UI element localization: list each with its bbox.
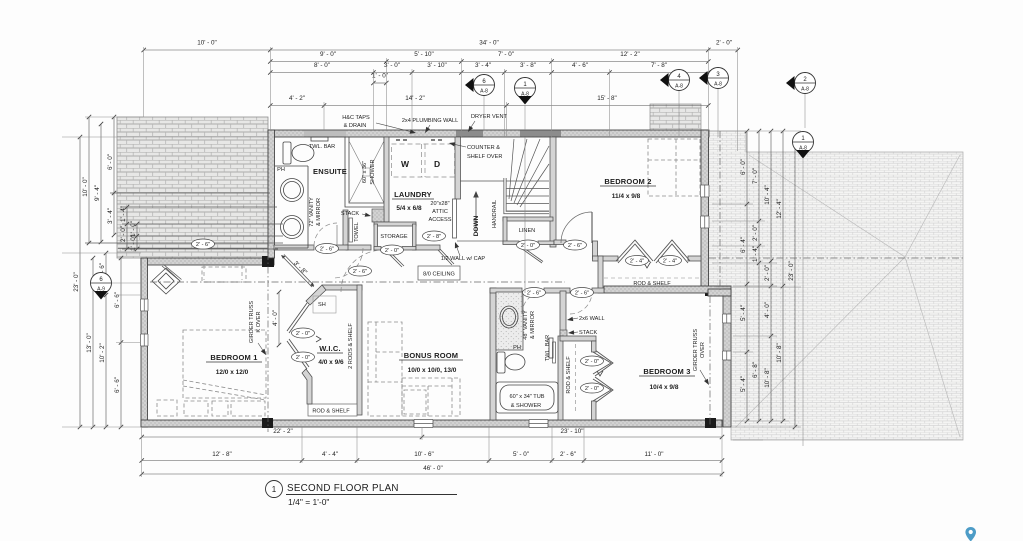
svg-text:& MIRROR: & MIRROR xyxy=(316,198,322,226)
svg-text:1: 1 xyxy=(272,485,277,494)
svg-text:PH: PH xyxy=(277,167,285,173)
svg-text:1' - 0": 1' - 0" xyxy=(130,221,137,237)
svg-text:6' - 6": 6' - 6" xyxy=(114,377,121,393)
svg-text:2' - 6": 2' - 6" xyxy=(196,242,210,248)
svg-text:W.I.C.: W.I.C. xyxy=(319,344,341,353)
svg-text:COUNTER &: COUNTER & xyxy=(467,145,500,151)
svg-text:2' - 8": 2' - 8" xyxy=(427,234,441,240)
svg-text:& MIRROR: & MIRROR xyxy=(530,311,536,339)
svg-text:ENSUITE: ENSUITE xyxy=(313,167,347,176)
svg-text:PH: PH xyxy=(513,345,521,351)
svg-text:34' - 0": 34' - 0" xyxy=(479,40,499,47)
svg-text:4/0 x 9/6: 4/0 x 9/6 xyxy=(318,359,344,366)
svg-text:48" VANITY: 48" VANITY xyxy=(523,310,529,340)
svg-text:2' - 4": 2' - 4" xyxy=(630,259,644,265)
svg-text:LINEN: LINEN xyxy=(519,228,535,234)
svg-text:6' - 8": 6' - 8" xyxy=(752,362,759,378)
svg-text:13' - 0": 13' - 0" xyxy=(86,333,93,353)
svg-text:2' - 6": 2' - 6" xyxy=(527,291,541,297)
svg-text:2' - 6": 2' - 6" xyxy=(575,291,589,297)
svg-text:46' - 0": 46' - 0" xyxy=(423,465,443,472)
svg-text:5/4 x 6/8: 5/4 x 6/8 xyxy=(396,205,422,212)
svg-text:2 RODS & SHELF: 2 RODS & SHELF xyxy=(348,323,354,369)
svg-text:14' - 2": 14' - 2" xyxy=(405,95,425,102)
svg-text:2' - 6": 2' - 6" xyxy=(560,451,576,458)
svg-text:10/0 x 10/0, 13/0: 10/0 x 10/0, 13/0 xyxy=(408,367,457,374)
svg-text:2x4 PLUMBING WALL: 2x4 PLUMBING WALL xyxy=(402,118,458,124)
svg-text:20"x28": 20"x28" xyxy=(430,201,449,207)
svg-text:W: W xyxy=(401,159,410,169)
svg-text:15' - 8": 15' - 8" xyxy=(597,95,617,102)
svg-text:23' - 0": 23' - 0" xyxy=(788,261,795,281)
svg-text:TWL. BAR: TWL. BAR xyxy=(545,335,551,361)
svg-text:TWL. BAR: TWL. BAR xyxy=(309,144,335,150)
svg-text:SH: SH xyxy=(318,302,326,308)
svg-text:A-8: A-8 xyxy=(675,84,683,90)
svg-text:ACCESS: ACCESS xyxy=(428,217,451,223)
svg-text:12' - 4": 12' - 4" xyxy=(776,199,783,219)
svg-text:4' - 0": 4' - 0" xyxy=(764,302,771,318)
svg-text:ROD & SHELF: ROD & SHELF xyxy=(312,409,350,415)
svg-text:1' - 4": 1' - 4" xyxy=(752,246,759,262)
svg-text:2' - 0": 2' - 0" xyxy=(585,359,599,365)
svg-text:10' - 0": 10' - 0" xyxy=(82,177,89,197)
svg-text:4' - 4": 4' - 4" xyxy=(322,451,338,458)
svg-text:2' - 6": 2' - 6" xyxy=(320,247,334,253)
svg-text:2' - 0": 2' - 0" xyxy=(752,225,759,241)
svg-text:STACK: STACK xyxy=(341,211,360,217)
svg-text:7' - 0": 7' - 0" xyxy=(752,168,759,184)
svg-text:& DRAIN: & DRAIN xyxy=(344,123,367,129)
svg-text:A-8: A-8 xyxy=(714,82,722,88)
svg-text:5' - 4": 5' - 4" xyxy=(740,305,747,321)
svg-text:1' - 4": 1' - 4" xyxy=(120,206,127,222)
svg-text:BONUS ROOM: BONUS ROOM xyxy=(404,351,459,360)
svg-text:2' - 4": 2' - 4" xyxy=(663,259,677,265)
svg-text:22' - 2": 22' - 2" xyxy=(273,428,293,435)
svg-text:10/4 x 9/8: 10/4 x 9/8 xyxy=(650,384,679,391)
svg-text:2' - 0": 2' - 0" xyxy=(585,386,599,392)
svg-text:11' - 0": 11' - 0" xyxy=(644,451,663,458)
svg-text:DRYER VENT: DRYER VENT xyxy=(471,114,508,120)
svg-text:1/2 WALL w/ CAP: 1/2 WALL w/ CAP xyxy=(441,256,486,262)
svg-text:12' - 2": 12' - 2" xyxy=(620,51,640,58)
svg-text:2' - 0": 2' - 0" xyxy=(120,226,127,242)
svg-text:5' - 10": 5' - 10" xyxy=(414,51,434,58)
svg-text:LAUNDRY: LAUNDRY xyxy=(394,190,432,199)
svg-text:10' - 6": 10' - 6" xyxy=(414,451,434,458)
svg-text:6' - 6": 6' - 6" xyxy=(114,292,121,308)
svg-text:& SHOWER: & SHOWER xyxy=(511,403,541,409)
svg-text:HANDRAIL: HANDRAIL xyxy=(492,200,498,228)
svg-text:60" x 36": 60" x 36" xyxy=(362,161,368,183)
svg-text:SECOND FLOOR PLAN: SECOND FLOOR PLAN xyxy=(287,483,399,494)
svg-text:4' - 0": 4' - 0" xyxy=(272,310,279,326)
svg-text:1' - 0": 1' - 0" xyxy=(372,73,388,80)
svg-text:SHOWER: SHOWER xyxy=(370,159,376,184)
svg-text:2' - 0": 2' - 0" xyxy=(296,355,310,361)
svg-text:2' - 6": 2' - 6" xyxy=(353,269,367,275)
svg-text:6' - 4": 6' - 4" xyxy=(740,237,747,253)
svg-text:7' - 8": 7' - 8" xyxy=(651,62,667,69)
svg-text:3' - 4": 3' - 4" xyxy=(107,208,114,224)
svg-text:5' - 4": 5' - 4" xyxy=(740,376,747,392)
svg-text:STACK: STACK xyxy=(579,330,598,336)
svg-text:TOWEL: TOWEL xyxy=(354,222,360,242)
svg-text:D: D xyxy=(434,159,440,169)
svg-text:10' - 8": 10' - 8" xyxy=(776,343,783,363)
svg-text:9' - 0": 9' - 0" xyxy=(320,51,336,58)
svg-text:H&C TAPS: H&C TAPS xyxy=(342,115,370,121)
svg-text:ROD & SHELF: ROD & SHELF xyxy=(633,281,671,287)
svg-text:23' - 0": 23' - 0" xyxy=(73,272,80,292)
svg-text:10' - 2": 10' - 2" xyxy=(99,343,106,363)
svg-text:7' - 0": 7' - 0" xyxy=(498,51,514,58)
svg-text:K OVER: K OVER xyxy=(256,311,262,332)
svg-text:BEDROOM 1: BEDROOM 1 xyxy=(210,353,257,362)
svg-text:3' - 8": 3' - 8" xyxy=(520,62,536,69)
svg-text:8' - 0": 8' - 0" xyxy=(314,62,330,69)
svg-text:6' - 0": 6' - 0" xyxy=(740,159,747,175)
svg-text:10' - 0": 10' - 0" xyxy=(197,40,217,47)
svg-text:GIRDER TRUSS: GIRDER TRUSS xyxy=(249,301,255,343)
svg-text:72" VANITY: 72" VANITY xyxy=(309,197,315,227)
svg-text:3' - 10": 3' - 10" xyxy=(427,62,447,69)
svg-text:A-8: A-8 xyxy=(801,87,809,93)
svg-text:12' - 8": 12' - 8" xyxy=(212,451,232,458)
svg-text:A-8: A-8 xyxy=(480,89,488,95)
svg-text:2' - 0": 2' - 0" xyxy=(296,331,310,337)
svg-text:2' - 0": 2' - 0" xyxy=(521,243,535,249)
svg-text:23' - 10": 23' - 10" xyxy=(560,428,583,435)
svg-text:11/4 x 9/8: 11/4 x 9/8 xyxy=(612,193,641,200)
svg-text:10' - 4": 10' - 4" xyxy=(764,185,771,205)
svg-text:1/4" = 1'-0": 1/4" = 1'-0" xyxy=(288,497,329,507)
svg-text:ATTIC: ATTIC xyxy=(432,209,448,215)
svg-text:2' - 0": 2' - 0" xyxy=(385,248,399,254)
svg-text:BEDROOM 2: BEDROOM 2 xyxy=(604,177,651,186)
svg-text:SHELF OVER: SHELF OVER xyxy=(467,154,502,160)
svg-text:3' - 4": 3' - 4" xyxy=(475,62,491,69)
svg-text:12/0 x 12/0: 12/0 x 12/0 xyxy=(216,369,249,376)
svg-text:10' - 8": 10' - 8" xyxy=(764,368,771,388)
svg-text:BEDROOM 3: BEDROOM 3 xyxy=(643,367,690,376)
svg-text:STORAGE: STORAGE xyxy=(380,234,408,240)
svg-text:6' - 0": 6' - 0" xyxy=(107,154,114,170)
svg-text:60" x 34" TUB: 60" x 34" TUB xyxy=(510,394,545,400)
svg-text:5' - 0": 5' - 0" xyxy=(513,451,529,458)
svg-text:ROD & SHELF: ROD & SHELF xyxy=(566,356,572,394)
svg-text:9' - 4": 9' - 4" xyxy=(94,185,101,201)
svg-text:4' - 2": 4' - 2" xyxy=(289,95,305,102)
svg-text:2' - 0": 2' - 0" xyxy=(764,265,771,281)
svg-text:2' - 0": 2' - 0" xyxy=(716,40,732,47)
svg-text:2' - 6": 2' - 6" xyxy=(568,243,582,249)
svg-text:OVER: OVER xyxy=(700,342,706,358)
svg-text:DOWN: DOWN xyxy=(473,215,480,236)
svg-text:8/0 CEILING: 8/0 CEILING xyxy=(423,272,455,278)
svg-text:2x6 WALL: 2x6 WALL xyxy=(579,316,605,322)
svg-text:GIRDER TRUSS: GIRDER TRUSS xyxy=(693,329,699,371)
svg-text:4' - 6": 4' - 6" xyxy=(572,62,588,69)
